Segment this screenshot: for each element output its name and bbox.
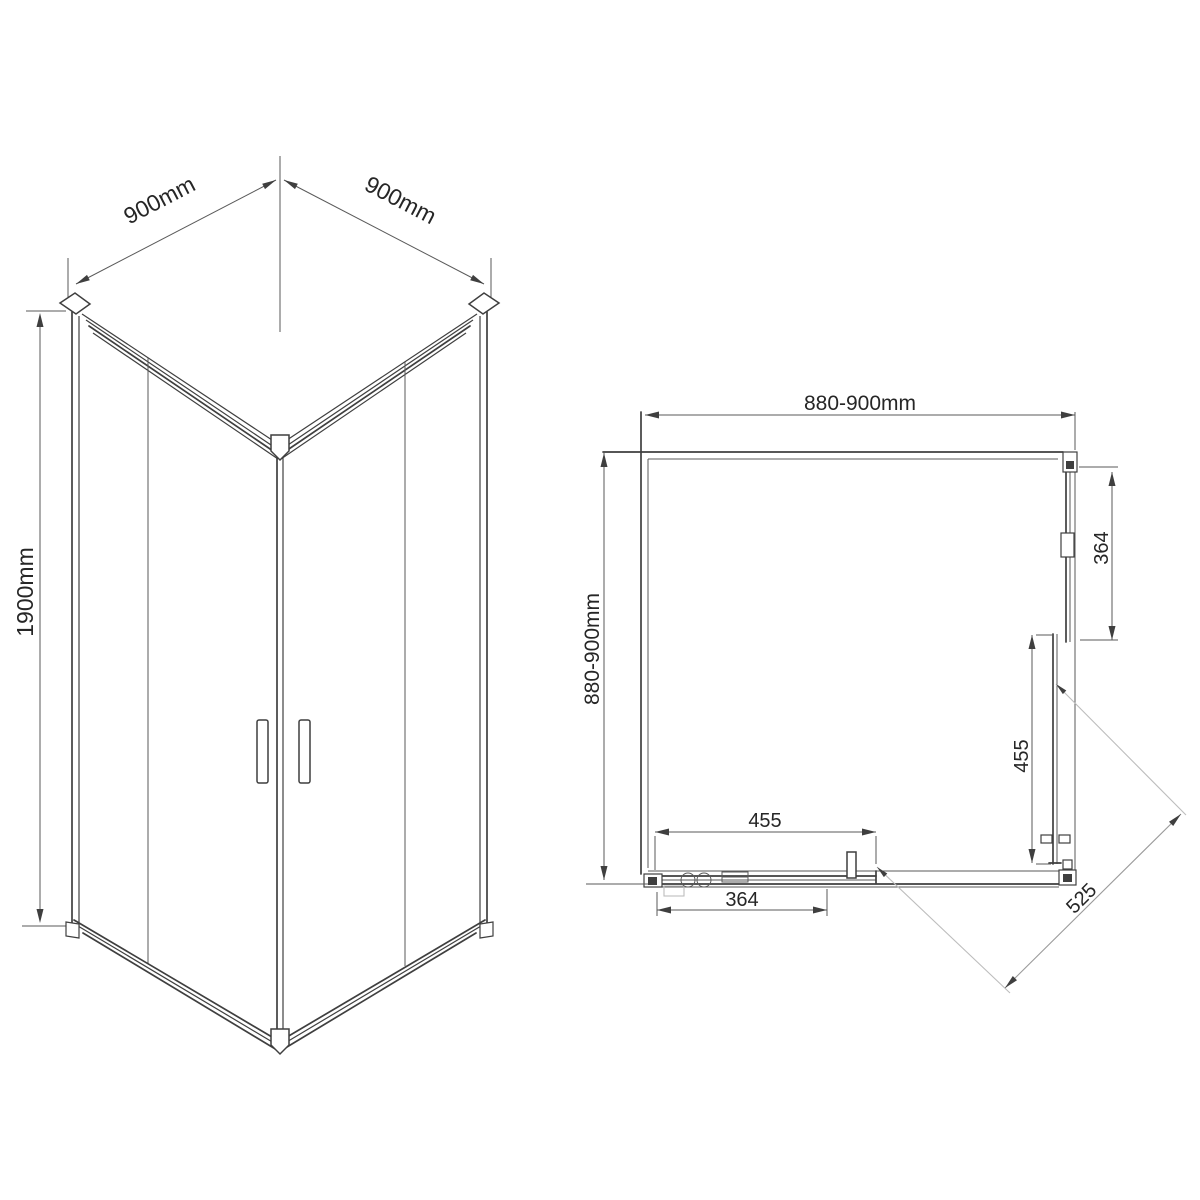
plan-view: 880-900mm 880-900mm 364 455 455 364 525 xyxy=(581,392,1186,993)
iso-handle-right xyxy=(299,720,310,783)
iso-dim-label-height: 1900mm xyxy=(12,547,38,636)
iso-wall-cap-right xyxy=(469,293,499,314)
drawing-svg: 900mm 900mm 1900mm xyxy=(0,0,1200,1200)
isometric-view: 900mm 900mm 1900mm xyxy=(12,156,499,1054)
plan-dim-label-right-panel: 364 xyxy=(1091,531,1113,564)
plan-corner-brackets xyxy=(644,452,1077,887)
plan-bottom-assembly xyxy=(648,852,1060,896)
plan-walls xyxy=(603,412,1063,874)
plan-dim-bottom-door xyxy=(655,829,876,871)
iso-wall-foot-right xyxy=(480,922,493,938)
technical-drawing-page: 900mm 900mm 1900mm xyxy=(0,0,1200,1200)
plan-dim-label-depth: 880-900mm xyxy=(581,593,604,705)
plan-dim-label-bottom-door: 455 xyxy=(748,810,781,832)
iso-dim-label-width-left: 900mm xyxy=(119,171,199,229)
plan-right-door-handle-outer xyxy=(1041,835,1052,843)
plan-right-panel-clamp xyxy=(1061,533,1074,557)
iso-dim-label-width-right: 900mm xyxy=(361,171,441,229)
plan-dim-label-right-door: 455 xyxy=(1011,739,1033,772)
plan-right-door-handle-inner xyxy=(1059,835,1070,843)
plan-dim-label-bottom-panel: 364 xyxy=(725,889,758,911)
plan-bottom-door-handle xyxy=(847,852,856,878)
plan-right-assembly xyxy=(1041,472,1075,870)
plan-dim-label-width: 880-900mm xyxy=(804,392,916,415)
iso-enclosure-structure xyxy=(60,293,499,1054)
plan-dim-width xyxy=(645,412,1075,451)
iso-extension-lines xyxy=(22,156,491,926)
iso-front-cap-bottom xyxy=(271,1029,289,1054)
iso-handle-left xyxy=(257,720,268,783)
iso-wall-foot-left xyxy=(66,922,79,938)
